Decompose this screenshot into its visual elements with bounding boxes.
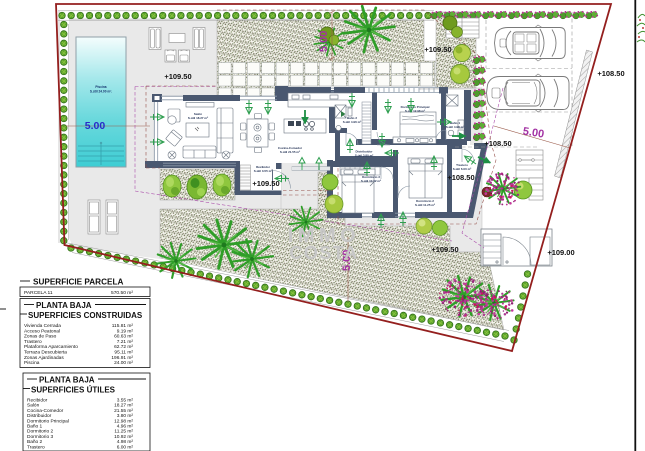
svg-text:Acceso Peatonal: Acceso Peatonal (24, 328, 60, 334)
svg-text:62.72 m²: 62.72 m² (114, 344, 133, 350)
svg-text:5.00: 5.00 (85, 120, 106, 132)
svg-text:9.19 m²: 9.19 m² (117, 328, 134, 334)
svg-text:18.27 m²: 18.27 m² (114, 403, 133, 409)
svg-text:Terraza Descubierta: Terraza Descubierta (24, 350, 67, 356)
svg-text:Trastero: Trastero (24, 339, 42, 345)
svg-text:24.00 m²: 24.00 m² (114, 360, 133, 366)
svg-text:Piscina: Piscina (24, 360, 40, 366)
svg-text:3.55 m²: 3.55 m² (117, 398, 134, 404)
svg-text:Dormitorio 3: Dormitorio 3 (27, 434, 53, 440)
svg-text:S.útil 18.27 m²: S.útil 18.27 m² (188, 116, 208, 120)
svg-text:11.25 m²: 11.25 m² (114, 429, 133, 435)
svg-text:196.91 m²: 196.91 m² (111, 355, 133, 361)
svg-text:+109.50: +109.50 (252, 179, 279, 188)
svg-text:21.55 m²: 21.55 m² (114, 408, 133, 414)
svg-text:PLANTA BAJA: PLANTA BAJA (39, 376, 95, 385)
svg-text:+108.50: +108.50 (447, 173, 474, 182)
svg-text:12.98 m²: 12.98 m² (114, 418, 133, 424)
svg-text:S.útil 3.80 m²: S.útil 3.80 m² (355, 154, 374, 158)
svg-text:Plataforma Aparcamiento: Plataforma Aparcamiento (24, 344, 78, 350)
svg-text:Zonas Ajardinadas: Zonas Ajardinadas (24, 355, 64, 361)
svg-text:S.útil 24.00 m².: S.útil 24.00 m². (90, 90, 112, 94)
svg-text:S.útil 21.55 m²: S.útil 21.55 m² (280, 150, 300, 154)
svg-text:3.80 m²: 3.80 m² (117, 413, 134, 419)
svg-text:Distribuidor: Distribuidor (27, 413, 52, 419)
svg-text:115.81 m²: 115.81 m² (112, 323, 134, 329)
svg-text:S.útil 3.55 m²: S.útil 3.55 m² (254, 169, 273, 173)
svg-text:4.98 m²: 4.98 m² (117, 439, 134, 445)
svg-text:95.11 m²: 95.11 m² (114, 350, 133, 356)
svg-text:PARCELA 11: PARCELA 11 (24, 290, 53, 296)
svg-text:Baño 2: Baño 2 (27, 439, 43, 445)
svg-text:+108.50: +108.50 (597, 69, 624, 78)
svg-text:PLANTA BAJA: PLANTA BAJA (36, 301, 92, 310)
svg-text:SUPERFICIE PARCELA: SUPERFICIE PARCELA (33, 278, 123, 287)
svg-text:Recibidor: Recibidor (27, 398, 48, 404)
svg-text:SUPERFICIES CONSTRUIDAS: SUPERFICIES CONSTRUIDAS (28, 311, 143, 320)
svg-text:Zonas de Paso: Zonas de Paso (24, 334, 57, 340)
svg-text:+109.50: +109.50 (164, 72, 191, 81)
svg-text:S.útil 12.98 m²: S.útil 12.98 m² (405, 109, 425, 113)
svg-text:5.00: 5.00 (318, 31, 330, 52)
svg-text:Cocina-Comedor: Cocina-Comedor (27, 408, 64, 414)
svg-text:60.63 m²: 60.63 m² (114, 334, 133, 340)
svg-text:Dormitorio Principal: Dormitorio Principal (27, 418, 69, 424)
svg-text:S.útil 4.98 m²: S.útil 4.98 m² (446, 125, 465, 129)
svg-text:Salón: Salón (27, 403, 40, 409)
svg-text:COSTA: COSTA (289, 243, 358, 263)
svg-text:+109.50: +109.50 (431, 245, 458, 254)
svg-text:Trastero: Trastero (27, 444, 45, 450)
svg-text:SUPERFICIES ÚTILES: SUPERFICIES ÚTILES (31, 386, 116, 395)
svg-text:Piscina: Piscina (95, 85, 106, 89)
svg-text:7.21 m²: 7.21 m² (117, 339, 134, 345)
svg-text:+109.50: +109.50 (424, 45, 451, 54)
svg-text:Baño 1: Baño 1 (27, 424, 43, 430)
svg-text:4.96 m²: 4.96 m² (117, 424, 134, 430)
svg-text:+108.50: +108.50 (484, 139, 511, 148)
svg-text:+109.00: +109.00 (547, 248, 574, 257)
svg-text:S.útil 11.25 m²: S.útil 11.25 m² (415, 203, 435, 207)
svg-text:570.50 m²: 570.50 m² (111, 290, 133, 296)
svg-text:6.00 m²: 6.00 m² (117, 444, 134, 450)
svg-text:Dormitorio 2: Dormitorio 2 (27, 429, 53, 435)
svg-text:S.útil 10.92 m²: S.útil 10.92 m² (361, 179, 381, 183)
svg-text:S.útil 4.96 m²: S.útil 4.96 m² (343, 120, 362, 124)
svg-text:10.92 m²: 10.92 m² (114, 434, 133, 440)
svg-text:S.útil 6.00 m²: S.útil 6.00 m² (453, 167, 472, 171)
svg-text:Vivienda Cerrada: Vivienda Cerrada (24, 323, 61, 329)
